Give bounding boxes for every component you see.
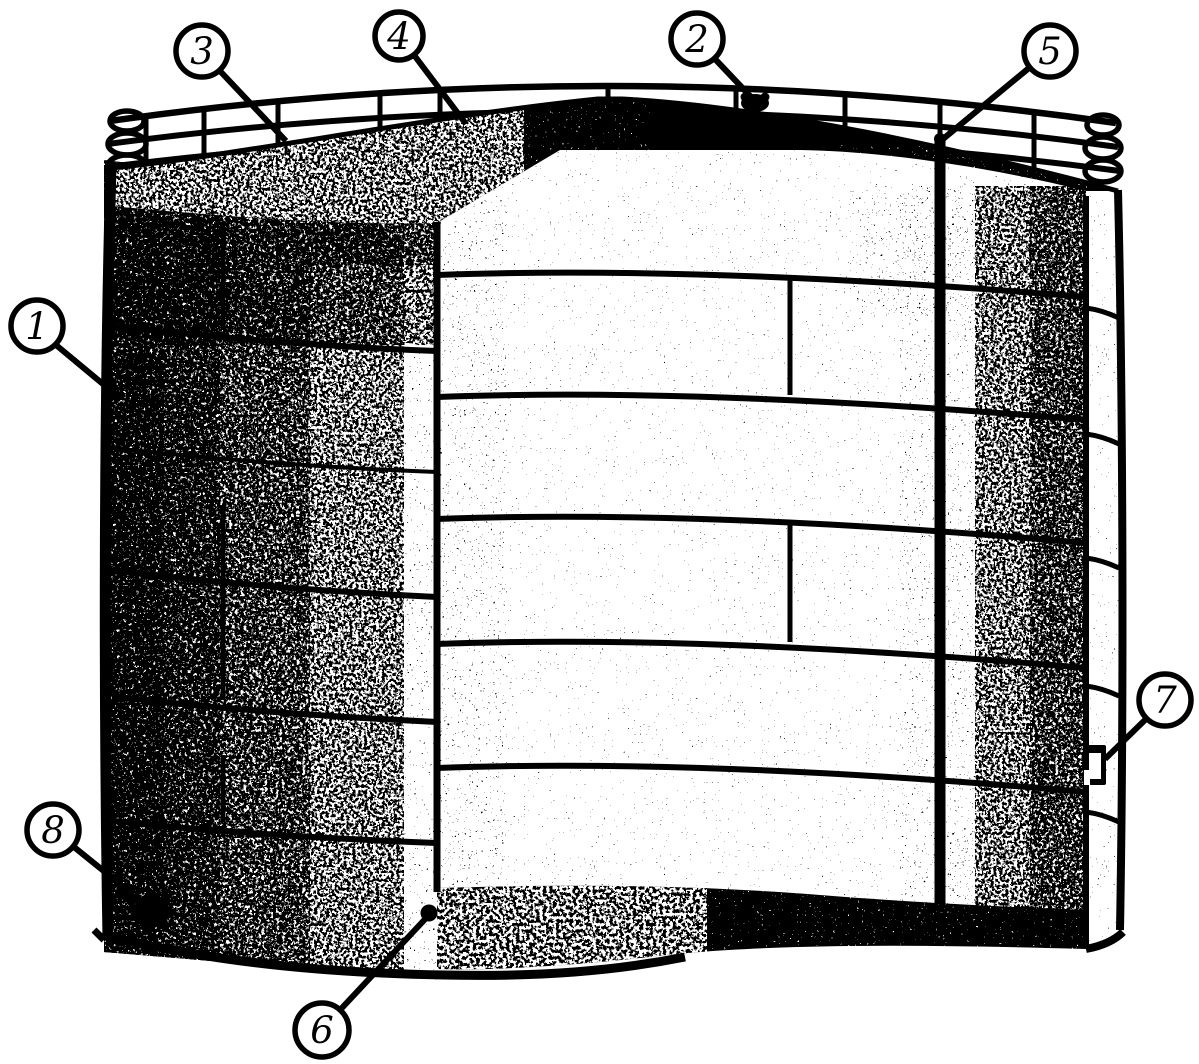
callout-label: 4 [386, 15, 411, 58]
stipple-patch [950, 840, 1086, 912]
callout-3: 3 [176, 25, 286, 141]
shell-right-edge [1118, 190, 1122, 930]
callout-label: 7 [1153, 679, 1177, 722]
shell-left-edge [105, 166, 111, 938]
tank-cutaway-illustration: 1 2 3 4 5 6 7 [0, 0, 1199, 1064]
side-nozzle-fitting [1084, 745, 1106, 785]
tank-interior [437, 150, 1086, 912]
callout-4: 4 [375, 12, 466, 124]
callout-label: 8 [41, 809, 65, 852]
shell-left-flank [104, 160, 437, 980]
callout-label: 2 [684, 18, 709, 61]
drawing-canvas: 1 2 3 4 5 6 7 [0, 0, 1199, 1064]
stipple-layer [104, 160, 437, 980]
roof-vent-fitting [741, 93, 770, 113]
callout-5: 5 [943, 25, 1076, 139]
callout-label: 3 [190, 30, 214, 73]
stipple-patch [437, 200, 507, 912]
stipple-layer [437, 150, 1086, 912]
callout-label: 6 [310, 1009, 334, 1052]
callout-label: 5 [1038, 30, 1062, 73]
callout-label: 1 [25, 305, 49, 348]
